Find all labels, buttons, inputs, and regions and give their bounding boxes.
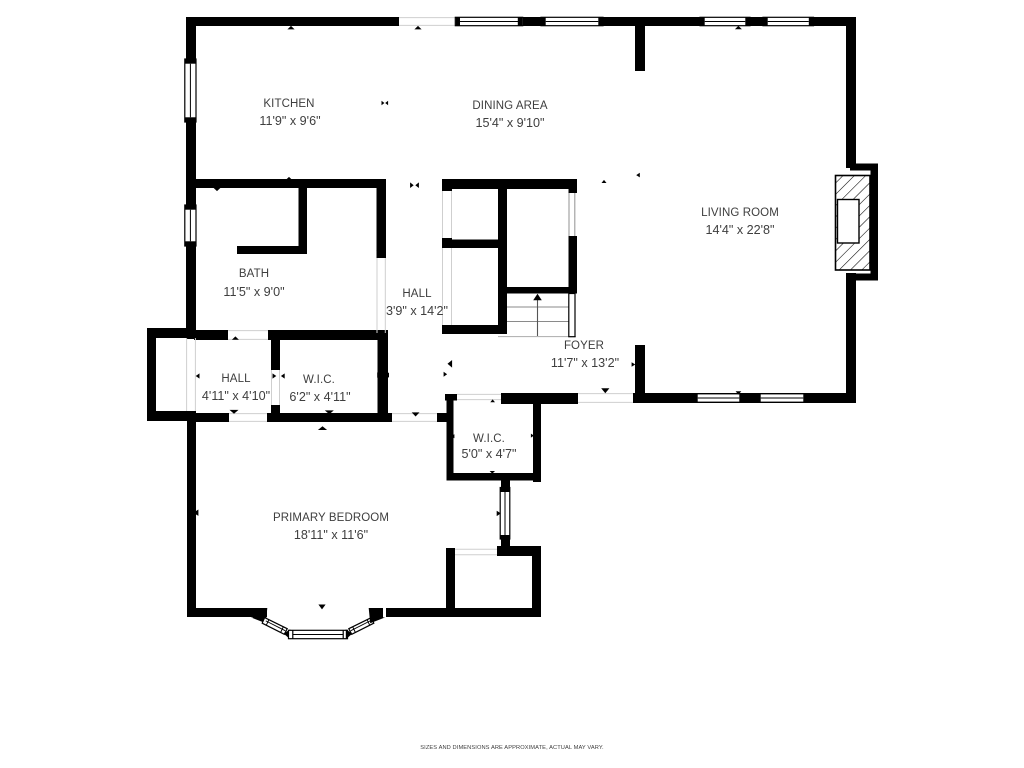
svg-text:11'5" x 9'0": 11'5" x 9'0" bbox=[223, 285, 284, 299]
svg-text:LIVING ROOM: LIVING ROOM bbox=[701, 207, 779, 219]
svg-text:5'0" x 4'7": 5'0" x 4'7" bbox=[461, 447, 516, 461]
svg-text:11'9" x 9'6": 11'9" x 9'6" bbox=[259, 114, 320, 128]
svg-text:DINING AREA: DINING AREA bbox=[472, 100, 547, 112]
svg-text:3'9" x 14'2": 3'9" x 14'2" bbox=[386, 304, 448, 318]
svg-text:HALL: HALL bbox=[221, 373, 251, 385]
svg-text:FOYER: FOYER bbox=[564, 340, 604, 352]
svg-text:W.I.C.: W.I.C. bbox=[303, 374, 335, 386]
svg-text:4'11" x 4'10": 4'11" x 4'10" bbox=[202, 389, 270, 403]
svg-text:PRIMARY BEDROOM: PRIMARY BEDROOM bbox=[273, 512, 389, 524]
svg-text:14'4" x 22'8": 14'4" x 22'8" bbox=[705, 223, 774, 237]
svg-text:KITCHEN: KITCHEN bbox=[263, 98, 314, 110]
svg-text:W.I.C.: W.I.C. bbox=[473, 433, 505, 445]
svg-text:18'11" x 11'6": 18'11" x 11'6" bbox=[294, 528, 368, 542]
svg-text:15'4" x 9'10": 15'4" x 9'10" bbox=[475, 116, 544, 130]
svg-text:HALL: HALL bbox=[402, 288, 432, 300]
svg-text:11'7" x 13'2": 11'7" x 13'2" bbox=[551, 356, 619, 370]
svg-text:6'2" x 4'11": 6'2" x 4'11" bbox=[289, 390, 350, 404]
svg-text:SIZES AND DIMENSIONS ARE APPRO: SIZES AND DIMENSIONS ARE APPROXIMATE, AC… bbox=[420, 745, 604, 751]
svg-text:BATH: BATH bbox=[239, 268, 269, 280]
